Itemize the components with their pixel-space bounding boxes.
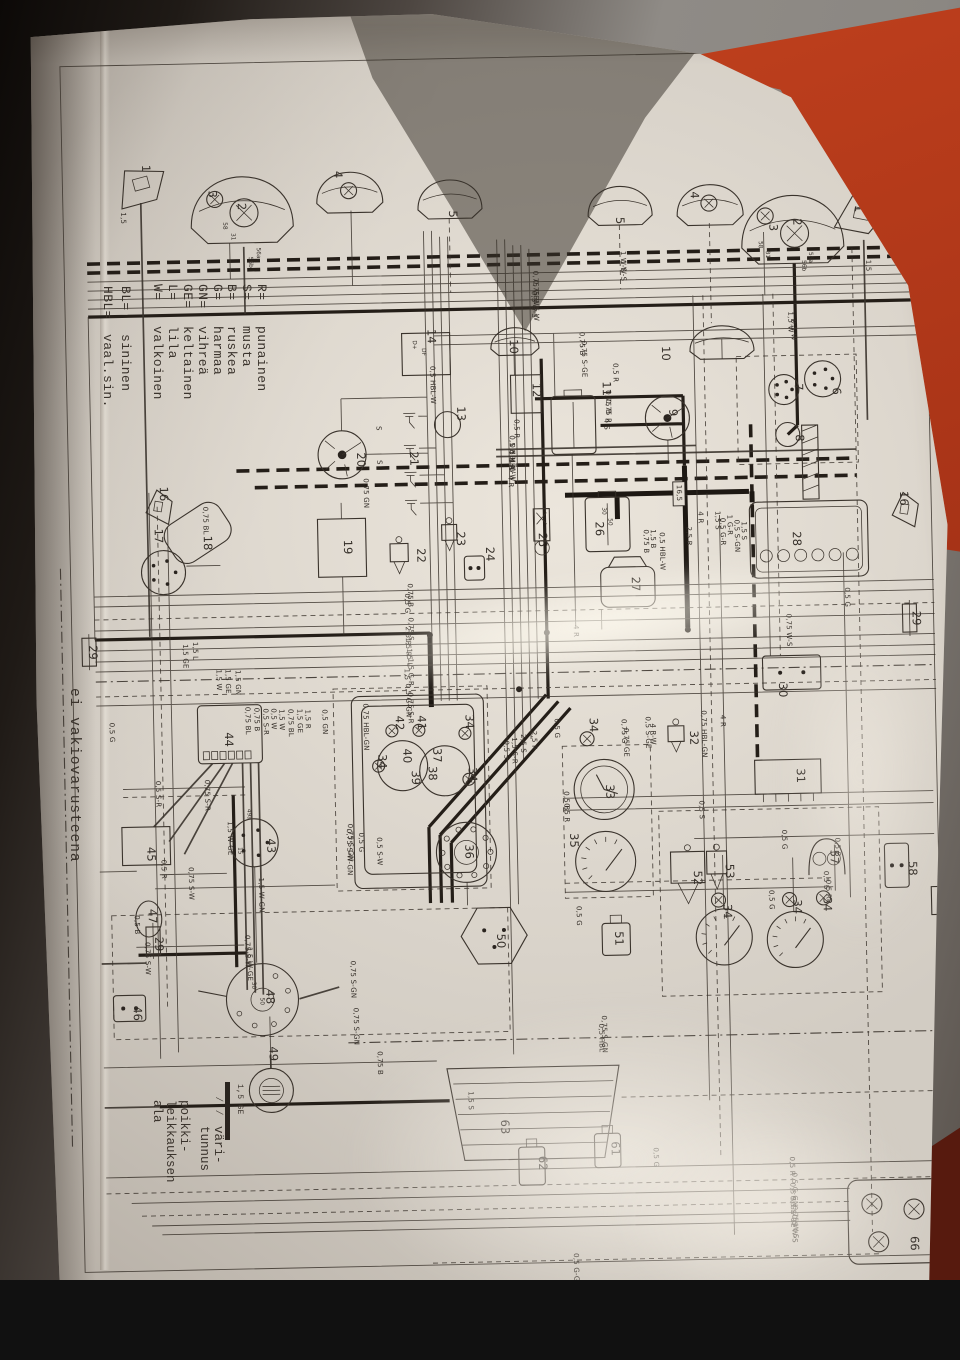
not-standard-note: ei vakiovarusteena <box>66 688 82 968</box>
wire-label: 0,5 S-R <box>261 708 270 735</box>
component-number: 62 <box>536 1156 550 1171</box>
component-number: 9 <box>666 409 680 417</box>
component-number: 34 <box>721 904 735 919</box>
component-number: 50 <box>494 933 508 948</box>
wire-label: 1,5 W <box>215 669 223 690</box>
symbol-bulb <box>701 195 717 211</box>
terminal-label: DF <box>420 348 426 356</box>
wire-label: 0,5 HBL <box>597 1023 606 1052</box>
symbol-relay <box>755 759 822 802</box>
legend-line: L=lila <box>164 284 179 474</box>
component-number: 10 <box>507 339 521 354</box>
wire-label: 0,5 B <box>133 915 141 934</box>
component-number: 7 <box>792 383 806 391</box>
component-number: 2 <box>790 218 804 226</box>
diagram-paper: 1324554321678910101112131416161718192021… <box>0 0 960 1280</box>
wire-key-sample: 1,5 GE <box>233 1084 247 1115</box>
component-number: 42 <box>393 716 407 731</box>
wire-label: 4 R <box>696 511 704 523</box>
wire-label: 0,75 BL <box>201 507 210 535</box>
wire-label: 0,75 S-R <box>406 692 415 723</box>
component-number: 28 <box>790 531 804 546</box>
component-number: 53 <box>723 864 737 879</box>
wire-label: 0,5 R <box>824 880 832 899</box>
component-number: 29 <box>938 894 952 909</box>
wire-label: 0,75 HBL-GN <box>700 710 709 757</box>
wire-label: 0,75 S-GN <box>346 824 355 862</box>
wire-label: 1,5 <box>403 668 411 680</box>
wire-label: 1,5 GE <box>181 644 190 669</box>
wire-label: 0,75 B <box>252 708 260 732</box>
symbol-fuse <box>931 882 946 918</box>
wire-label: 0,75 S-W <box>143 942 152 975</box>
component-number: 49 <box>266 1046 280 1061</box>
wire-label: 2,5 S <box>519 734 527 753</box>
wire-label: 0,5 B <box>833 837 841 856</box>
symbol-dome <box>316 172 383 214</box>
wire-label: 16,5 <box>675 485 683 502</box>
component-number: 16 <box>157 486 171 501</box>
wire-label: 0,5 GN <box>320 709 329 734</box>
wire-label: 2,5 R <box>530 731 538 750</box>
component-number: 47 <box>146 909 160 924</box>
wire-label: 1,5 B <box>649 529 657 548</box>
color-code-legend: R=punainen S=musta B=ruskea G=harmaa GN=… <box>150 284 268 474</box>
component-number: 46 <box>131 1006 145 1021</box>
terminal-label: 58 <box>221 222 227 230</box>
symbol-hex <box>461 907 528 964</box>
component-number: 66 <box>908 1236 922 1251</box>
legend-line: B=ruskea <box>224 284 239 474</box>
symbol-plug <box>403 413 415 428</box>
symbol-horn <box>249 1068 294 1113</box>
wire-label: 1 G-R <box>725 515 733 536</box>
component-number: 32 <box>687 730 701 745</box>
wire-label: 0,5 HBL-W <box>428 366 437 404</box>
component-number: 18 <box>201 536 215 551</box>
wire-label: 0,5 S <box>502 740 510 759</box>
wire-label: 1,5 W <box>277 709 285 730</box>
terminal-label: 56a <box>255 248 261 259</box>
wire-label: 0,75 HBL-GN <box>361 703 370 750</box>
wire-label: 0,5 W <box>269 708 277 729</box>
component-number: 27 <box>629 577 643 592</box>
legend-line: S=musta <box>238 284 253 474</box>
wire-label: 4 R <box>507 458 515 470</box>
symbol-plug <box>405 500 417 515</box>
wire-label: 1,5 W-GE <box>245 947 254 981</box>
wire-label: 4 S <box>602 418 610 430</box>
component-number: 1 <box>139 165 153 173</box>
terminal-label: 50 <box>258 998 264 1006</box>
terminal-label: 31 <box>229 233 235 241</box>
component-number: 38 <box>426 766 440 781</box>
wire-label: 1,5 GE <box>224 669 233 694</box>
wire-label: 4 R <box>719 715 727 727</box>
wire-key-legend: 1,5 GE ∕ ∕ väri- tunnus poikki- leikkauk… <box>137 1080 252 1268</box>
component-number: 29 <box>86 645 100 660</box>
wire-label: 1,5 W-GE <box>226 821 235 855</box>
wire-label: 0,75 BL <box>286 709 295 737</box>
wire-label: 1,5 S <box>466 1091 474 1110</box>
symbol-conn <box>884 843 909 887</box>
terminal-label: 15 <box>236 847 242 855</box>
wire-label: 0,5 G <box>403 593 411 613</box>
symbol-bulb <box>757 208 773 224</box>
wire-label: 0,75 GN <box>362 478 371 508</box>
photo-scene: 1324554321678910101112131416161718192021… <box>0 0 960 1280</box>
wire-label: 0,5 G <box>108 723 116 743</box>
component-number: 35 <box>567 833 581 848</box>
wire-label: 0,5 S-R <box>154 781 163 808</box>
symbol-sender <box>668 719 685 752</box>
component-number: 36 <box>462 844 476 859</box>
symbol-bulb <box>459 727 471 739</box>
wire-label: 2,5 R <box>685 527 693 546</box>
wire-label: 0,5 R <box>611 363 619 382</box>
component-number: 16 <box>897 491 911 506</box>
component-number: 5 <box>446 210 460 218</box>
wire-label: 0,5 W <box>789 319 797 340</box>
wire-label: 0,5 G <box>357 832 365 852</box>
component-number: 4 <box>331 171 345 179</box>
wire-label: 0,5 HBL-W <box>658 532 667 570</box>
symbol-gauge <box>767 911 824 968</box>
wire-label: 0,5 R <box>160 860 168 879</box>
terminal-label: 56b <box>247 257 253 268</box>
component-number: 34 <box>463 714 477 729</box>
symbol-bag <box>158 496 237 569</box>
legend-line: HBL=vaal.sin. <box>98 286 116 482</box>
wire-label: 0,5 W-S <box>790 1214 799 1243</box>
legend-line: G=harmaa <box>209 284 224 474</box>
component-number: 43 <box>264 838 278 853</box>
component-number: 6 <box>830 387 844 395</box>
component-number: 44 <box>222 732 236 747</box>
component-number: 61 <box>609 1141 623 1156</box>
wire-label: 0,75 S-GN <box>352 1008 361 1046</box>
wire-label: 1,5 GN <box>234 670 243 695</box>
component-number: 17 <box>152 529 166 544</box>
wire-label: 1,5 L <box>191 642 199 660</box>
wire-label: 0,5 S-W <box>375 837 384 866</box>
symbol-bulb <box>340 182 356 198</box>
wire-label: 0,5 G <box>843 587 851 607</box>
component-number: 39 <box>409 770 423 785</box>
component-number: 45 <box>144 847 158 862</box>
component-number: 12 <box>530 383 544 398</box>
wire-key-bar <box>226 1082 231 1140</box>
symbol-dome <box>677 184 744 226</box>
component-number: 34 <box>791 899 805 914</box>
legend-line: GE=keltainen <box>179 284 194 474</box>
wire-label: 0,5 S <box>697 800 705 819</box>
wire-label: 0,5 G <box>767 890 775 910</box>
legend-line: BL=sininen <box>116 286 134 482</box>
component-number: 3 <box>206 190 220 198</box>
wire-label: 0,75 S-R <box>203 780 212 811</box>
component-number: 41 <box>415 715 429 730</box>
wire-label: 1,5 S-R <box>510 737 519 764</box>
component-number: 34 <box>587 717 601 732</box>
component-number: 33 <box>603 784 617 799</box>
component-number: 37 <box>430 748 444 763</box>
extra-color-code-legend: BL=sininen HBL=vaal.sin. <box>98 286 134 482</box>
component-number: 14 <box>424 329 438 344</box>
terminal-label: 31 <box>764 251 770 259</box>
wire-label: 0,75 S-W <box>187 867 196 900</box>
wire-label: 0,75 S-GN <box>349 961 358 999</box>
wire-label: S <box>375 460 383 465</box>
symbol-bulb <box>580 732 594 746</box>
component-number: 20 <box>354 452 368 467</box>
component-number: 26 <box>593 521 607 536</box>
wire-key-area-label: poikki- leikkauksen ala <box>150 1100 191 1183</box>
terminal-label: D+ <box>411 340 417 350</box>
wire-label: 1,5 <box>119 212 127 224</box>
component-number: 52 <box>691 870 705 885</box>
terminal-label: 50 <box>606 518 612 526</box>
terminal-label: 49a <box>245 809 251 820</box>
component-number: 23 <box>454 531 468 546</box>
component-number: 63 <box>498 1119 512 1134</box>
symbol-conn <box>762 655 821 690</box>
wire-label: 1,5 S <box>740 521 748 540</box>
component-number: 10 <box>659 346 673 361</box>
component-number: 2 <box>235 203 249 211</box>
wire-key-color-label: väri- tunnus <box>197 1126 224 1171</box>
terminal-label: 56b <box>800 260 806 271</box>
wire-label: S <box>374 426 382 431</box>
legend-line: W=valkoinen <box>150 284 165 474</box>
component-number: 58 <box>906 861 920 876</box>
wire-label: 1,5 W <box>532 300 540 321</box>
wire-label: 0,5 G <box>780 830 788 850</box>
component-number: 19 <box>341 540 355 555</box>
wire-label: 0,5 G <box>575 906 583 926</box>
wire-label: 1,5 <box>864 260 872 272</box>
component-number: 21 <box>407 451 421 466</box>
wire-label: 0,75 GE <box>622 728 631 757</box>
wire-label: 4 R <box>572 625 580 637</box>
symbol-wiper <box>600 556 655 607</box>
terminal-label: 56a <box>807 252 813 263</box>
symbol-sender <box>390 536 409 573</box>
wire-label: 0,75 BL <box>243 707 252 735</box>
symbol-dome <box>741 194 844 264</box>
symbol-conn <box>464 556 484 580</box>
wire-label: 0,5 G <box>652 1147 660 1167</box>
wire-label: 0,5 G-GN <box>572 1253 581 1280</box>
component-number: 30 <box>776 683 790 698</box>
terminal-label: 58 <box>757 241 763 249</box>
component-number: 8 <box>793 434 807 442</box>
wire-label: 1,5 W-GN <box>257 878 266 913</box>
wire-label: 0,75 S-GE <box>580 341 589 378</box>
component-number: 31 <box>794 768 808 783</box>
wire-label: 0,5 R <box>562 803 570 822</box>
component-number: 4 <box>688 191 702 199</box>
component-number: 22 <box>414 548 428 563</box>
wire-label: 4 R-W <box>649 723 657 745</box>
wire-label: 0,75 B <box>376 1051 384 1075</box>
component-number: 29 <box>152 937 166 952</box>
legend-line: GN=vihreä <box>194 284 209 474</box>
component-number: 51 <box>612 931 626 946</box>
component-number: 29 <box>909 611 923 626</box>
wire-key-callout: ∕ ∕ <box>211 1096 225 1116</box>
component-number: 3 <box>766 224 780 232</box>
component-number: 5 <box>613 217 627 225</box>
wire-label: 1,5 GE <box>295 709 304 734</box>
component-number: 34 <box>466 767 480 782</box>
component-number: 40 <box>400 748 414 763</box>
component-number: 24 <box>483 547 497 562</box>
terminal-label: 30 <box>250 982 256 990</box>
wire-label: 4 R <box>507 475 515 487</box>
terminal-label: 30 <box>600 507 606 515</box>
component-number: 34 <box>375 754 389 769</box>
legend-line: R=punainen <box>253 284 268 474</box>
wire-label: 0,5 G <box>553 718 561 738</box>
component-number: 25 <box>536 533 550 548</box>
wire-label: 1 W-S <box>619 260 627 282</box>
wire-label: 1,5 R <box>303 710 311 729</box>
component-number: 13 <box>454 406 468 421</box>
wire-label: 0,75 W-S <box>785 613 794 647</box>
